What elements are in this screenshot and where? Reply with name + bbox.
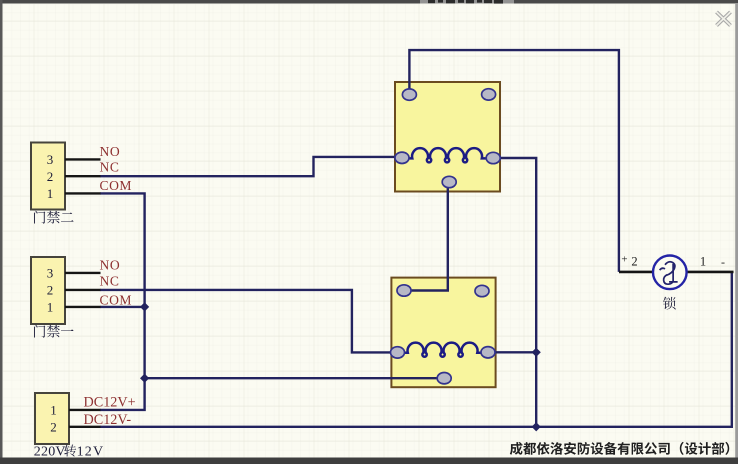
svg-text:2: 2 [50, 420, 57, 435]
svg-text:DC12V+: DC12V+ [84, 395, 136, 411]
svg-text:COM: COM [100, 292, 132, 307]
svg-text:220V: 220V [34, 445, 66, 460]
svg-text:NC: NC [100, 160, 120, 175]
svg-text:1: 1 [47, 186, 54, 201]
svg-text:-: - [721, 255, 725, 269]
svg-text:1: 1 [47, 300, 54, 315]
svg-text:+: + [621, 254, 627, 266]
svg-text:2: 2 [47, 169, 54, 184]
svg-text:NC: NC [100, 274, 120, 289]
svg-text:3: 3 [47, 266, 54, 281]
svg-text:2: 2 [631, 255, 637, 269]
svg-text:3: 3 [47, 152, 54, 167]
svg-text:12V: 12V [77, 445, 105, 460]
svg-text:2: 2 [47, 283, 54, 298]
svg-text:NO: NO [100, 258, 121, 273]
svg-text:1: 1 [50, 403, 57, 418]
svg-text:DC12V-: DC12V- [84, 412, 132, 428]
svg-text:COM: COM [100, 178, 132, 193]
svg-text:1: 1 [700, 255, 706, 269]
svg-text:NO: NO [100, 144, 121, 159]
